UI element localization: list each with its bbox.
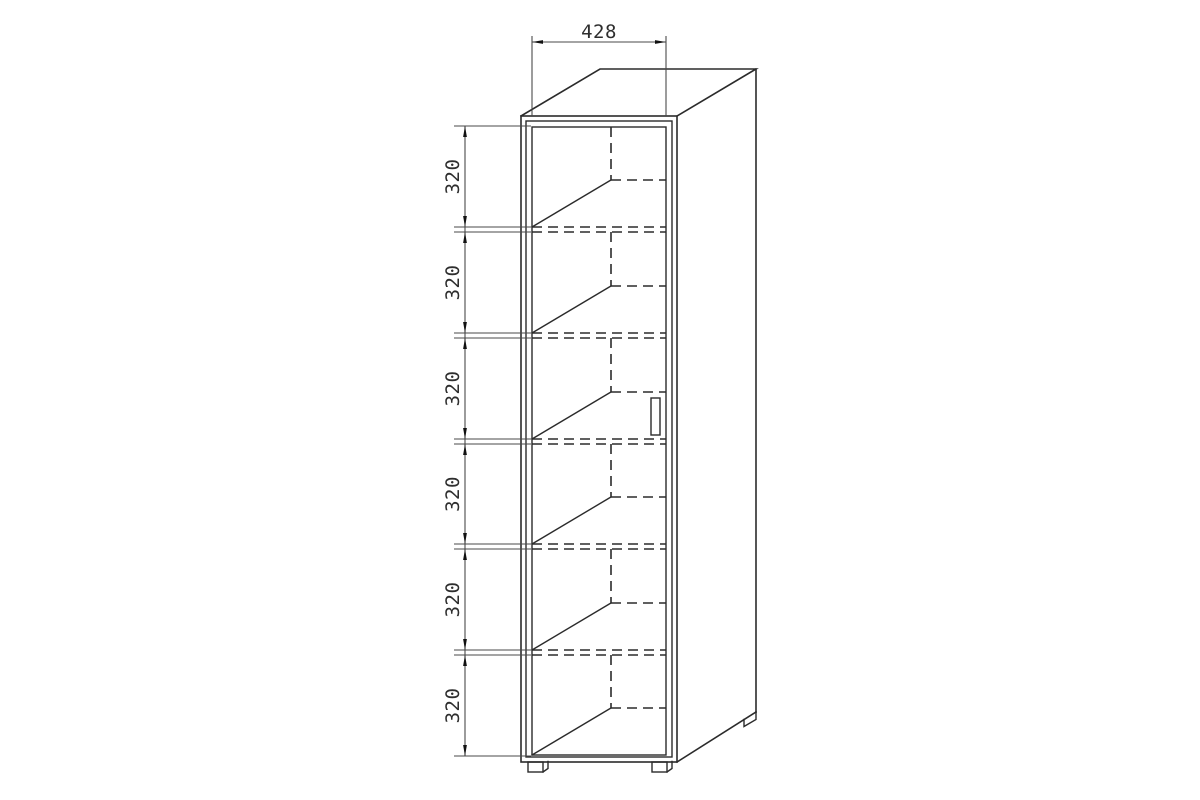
section-dimension-label-3: 320 [442,371,464,407]
cabinet-top-face [521,69,756,116]
width-arrow-right [655,40,666,44]
shelf-front-edges [532,227,666,655]
front-left-foot-side [543,762,548,773]
width-arrow-left [532,40,543,44]
cabinet-door-inner-frame [532,127,666,755]
section-dimension-label-1: 320 [442,159,464,195]
section-dimension-label-4: 320 [442,476,464,512]
width-dimension-label: 428 [581,21,617,43]
cabinet-dimension-drawing: 428 [0,0,1200,800]
front-right-foot-side [667,762,672,773]
cabinet-feet [528,712,756,772]
section-dimension-label-6: 320 [442,688,464,724]
front-right-foot [652,762,667,772]
shelf-left-diagonals [532,180,611,755]
section-dimension-label-2: 320 [442,265,464,301]
cabinet-body [521,69,756,772]
section-dimension-label-5: 320 [442,582,464,618]
section-dimension-labels: 320 320 320 320 320 320 [442,159,464,724]
technical-drawing-page: 428 [0,0,1200,800]
section-dimension-chain: 320 320 320 320 320 320 [442,126,531,756]
front-left-foot [528,762,543,772]
door-handle [651,398,660,435]
interior-shelves [532,127,666,755]
